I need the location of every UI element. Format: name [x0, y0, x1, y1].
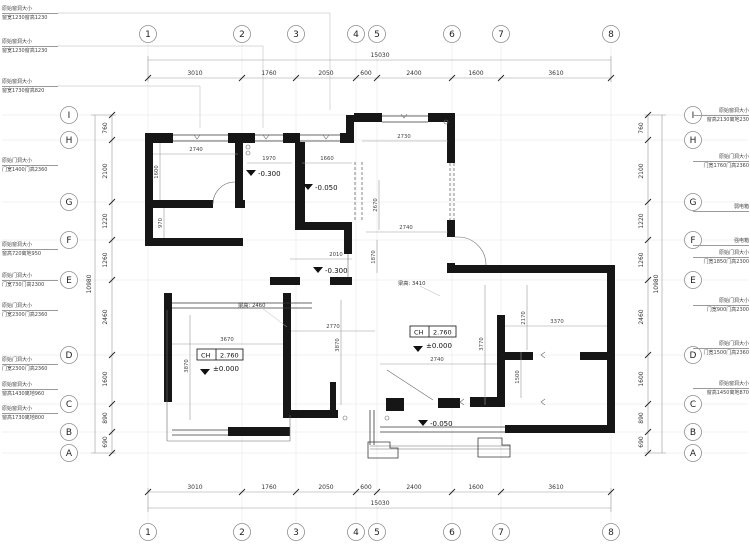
annotation-value: 窗宽1230窗高1230: [2, 14, 58, 21]
dim-text: 2740: [430, 357, 444, 363]
dim-text: 1260: [638, 252, 645, 267]
wall-layer: [145, 113, 615, 436]
svg-text:C: C: [66, 400, 72, 410]
dim-text: 2460: [638, 309, 645, 324]
dim-text: 3010: [187, 484, 202, 491]
svg-text:F: F: [66, 236, 71, 246]
grid-bubble: C: [61, 396, 78, 413]
grid-bubble: D: [61, 347, 78, 364]
dim-text: 2770: [326, 324, 340, 330]
annotation-door: 原始门洞大小门宽2300门高2360: [2, 303, 58, 318]
svg-text:G: G: [66, 198, 73, 208]
grid-bubble: 3: [288, 26, 305, 43]
annotation-value: 窗高2130离地230: [693, 116, 749, 123]
svg-text:B: B: [66, 428, 72, 438]
grid-bubble: 6: [444, 524, 461, 541]
annotation-door: 原始门洞大小门宽900门高2300: [693, 298, 749, 313]
grid-bubble: 6: [444, 26, 461, 43]
dim-text: 3610: [548, 484, 563, 491]
annotation-window: 原始窗洞大小窗高720离地950: [2, 242, 58, 257]
dim-text: 2170: [521, 311, 527, 325]
annotation-value: 窗宽1230窗高1230: [2, 47, 58, 54]
dim-text: 2100: [102, 163, 109, 178]
grid-bubble: 2: [234, 26, 251, 43]
dim-text: 2740: [399, 225, 413, 231]
svg-text:1: 1: [145, 30, 151, 40]
grid-bubble: A: [61, 445, 78, 462]
svg-text:8: 8: [608, 528, 614, 538]
grid-bubble: 8: [603, 524, 620, 541]
datum-text: ±0.000: [426, 342, 452, 350]
dim-text: 3870: [184, 359, 190, 373]
annotation-value: 窗高1430离地960: [2, 390, 58, 397]
ch-value: 2.760: [433, 329, 452, 337]
beam-label: 梁高: 3410: [398, 279, 426, 287]
annotation-title: 原始门洞大小: [2, 303, 58, 311]
annotation-title: 原始门洞大小: [2, 158, 58, 166]
dim-text: 760: [102, 122, 109, 134]
door-swings: [213, 182, 486, 400]
annotation-title: 原始门洞大小: [693, 298, 749, 306]
svg-text:3: 3: [293, 30, 299, 40]
dim-text: 3870: [335, 338, 341, 352]
annotation-window: 原始窗洞大小窗高1430离地960: [2, 382, 58, 397]
svg-text:1: 1: [145, 528, 151, 538]
dim-text: 2740: [189, 147, 203, 153]
grid-bubble: 5: [369, 26, 386, 43]
annotation-value: 门宽1500门高2360: [693, 349, 749, 356]
annotation-value: 门宽900门高2300: [693, 306, 749, 313]
grid-bubble: 3: [288, 524, 305, 541]
dim-text: 1220: [102, 213, 109, 228]
dim-text: 2730: [397, 134, 411, 140]
annotation-window: 原始窗洞大小窗高1450离地870: [693, 381, 749, 396]
dim-text: 1600: [638, 371, 645, 386]
spot-elevations: -0.300 -0.050 -0.300 -0.050: [246, 170, 453, 428]
annotation-value: 窗高720离地950: [2, 250, 58, 257]
annotation-title: 原始窗洞大小: [2, 406, 58, 414]
annotation-title: 原始门洞大小: [693, 341, 749, 349]
level-text: -0.300: [325, 267, 348, 275]
dim-text: 760: [638, 122, 645, 134]
dim-text: 1970: [262, 156, 276, 162]
grid-bubble: 5: [369, 524, 386, 541]
svg-text:7: 7: [498, 30, 504, 40]
grid-bubble: 1: [140, 26, 157, 43]
annotation-title: 原始窗洞大小: [2, 6, 58, 14]
annotation-title: 强电箱: [693, 238, 749, 246]
annotation-title: 原始窗洞大小: [2, 39, 58, 47]
annotation-title: 原始门洞大小: [2, 273, 58, 281]
grid-bubble: 8: [603, 26, 620, 43]
grid-bubbles-top: 1 2 3 4 5 6 7 8: [140, 26, 620, 43]
annotation-window: 原始窗洞大小窗高1730离地800: [2, 406, 58, 421]
dim-text: 3610: [548, 70, 563, 77]
bottom-dimensions: 15030 3010 1760 2050 600 2400 1600 3610: [187, 484, 563, 507]
dim-text: 1220: [638, 213, 645, 228]
ch-label: CH: [201, 352, 211, 360]
dim-text: 600: [360, 484, 372, 491]
svg-text:I: I: [68, 111, 71, 121]
svg-text:8: 8: [608, 30, 614, 40]
dim-text: 1600: [468, 70, 483, 77]
svg-text:H: H: [690, 136, 697, 146]
svg-text:E: E: [690, 276, 696, 286]
svg-text:5: 5: [374, 30, 380, 40]
dim-text: 3370: [550, 319, 564, 325]
datum-text: ±0.000: [213, 365, 239, 373]
svg-text:A: A: [66, 449, 73, 459]
floor-plan-canvas: 15030 3010 1760 2050 600 2400 1600 3610 …: [0, 0, 750, 556]
dim-text: 1600: [102, 371, 109, 386]
dim-text: 10980: [86, 274, 93, 293]
dim-text: 1260: [102, 252, 109, 267]
svg-text:E: E: [66, 276, 72, 286]
ch-box-dining: CH 2.760 ±0.000: [410, 326, 456, 352]
grid-bubble: 1: [140, 524, 157, 541]
grid-bubbles-left: I H G F E D C B A: [61, 107, 78, 462]
annotation-window: 原始窗洞大小窗宽1230窗高1230: [2, 6, 58, 21]
grid-bubble: B: [61, 424, 78, 441]
svg-text:H: H: [66, 136, 73, 146]
annotation-value: 窗宽1730窗高820: [2, 87, 58, 94]
level-text: -0.050: [430, 420, 453, 428]
right-dimensions: 10980 760 2100 1220 1260 2460 1600 890 6…: [638, 122, 660, 448]
dim-text: 10980: [653, 274, 660, 293]
dim-text: 15030: [370, 500, 389, 507]
annotation-value: 门宽1760门高2360: [693, 162, 749, 169]
svg-text:4: 4: [353, 30, 359, 40]
grid-bubble: 4: [348, 26, 365, 43]
dim-text: 2670: [373, 198, 379, 212]
annotation-title: 原始门洞大小: [2, 357, 58, 365]
dim-text: 1870: [371, 250, 377, 264]
svg-text:A: A: [690, 449, 697, 459]
svg-text:3: 3: [293, 528, 299, 538]
annotation-value: 门宽2300门高2360: [2, 311, 58, 318]
annotation-title: 原始门洞大小: [693, 154, 749, 162]
grid-bubble: C: [685, 396, 702, 413]
grid-bubbles-bottom: 1 2 3 4 5 6 7 8: [140, 524, 620, 541]
annotation-door: 原始门洞大小门宽1850门高2300: [693, 250, 749, 265]
dim-text: 2010: [329, 252, 343, 258]
svg-text:5: 5: [374, 528, 380, 538]
dim-text: 1660: [320, 156, 334, 162]
grid-bubble: E: [685, 272, 702, 289]
annotation-title: 原始窗洞大小: [693, 381, 749, 389]
annotation-door: 原始门洞大小门宽1400门高2360: [2, 158, 58, 173]
grid-bubble: G: [61, 194, 78, 211]
svg-text:2: 2: [239, 30, 245, 40]
annotation-weak-current-box: 弱电箱: [693, 204, 749, 212]
level-text: -0.050: [315, 184, 338, 192]
svg-text:C: C: [690, 400, 696, 410]
annotation-title: 原始窗洞大小: [2, 242, 58, 250]
annotation-title: 原始门洞大小: [693, 250, 749, 258]
annotation-value: 门宽730门高2300: [2, 281, 58, 288]
grid-bubble: H: [61, 132, 78, 149]
svg-text:6: 6: [449, 528, 455, 538]
svg-text:B: B: [690, 428, 696, 438]
annotation-window: 原始窗洞大小窗宽1230窗高1230: [2, 39, 58, 54]
dim-text: 2100: [638, 163, 645, 178]
dim-text: 890: [638, 412, 645, 424]
dim-text: 1760: [261, 484, 276, 491]
dim-text: 3670: [220, 337, 234, 343]
dim-text: 1760: [261, 70, 276, 77]
annotation-value: 窗高1730离地800: [2, 414, 58, 421]
floor-plan-svg: 15030 3010 1760 2050 600 2400 1600 3610 …: [0, 0, 750, 556]
svg-text:4: 4: [353, 528, 359, 538]
dim-text: 690: [102, 436, 109, 448]
dim-text: 2050: [318, 484, 333, 491]
svg-text:7: 7: [498, 528, 504, 538]
annotation-value: 窗高1450离地870: [693, 389, 749, 396]
annotation-value: 门宽2300门高2360: [2, 365, 58, 372]
grid-bubble: 7: [493, 524, 510, 541]
annotation-door: 原始门洞大小门宽730门高2300: [2, 273, 58, 288]
annotation-door: 原始门洞大小门宽1500门高2360: [693, 341, 749, 356]
dim-text: 600: [360, 70, 372, 77]
interior-dim-lines: [153, 141, 607, 420]
grid-bubble: 4: [348, 524, 365, 541]
ch-label: CH: [414, 329, 424, 337]
annotation-value: 门宽1850门高2300: [693, 258, 749, 265]
dim-text: 970: [158, 217, 164, 228]
grid-bubble: H: [685, 132, 702, 149]
annotation-title: 原始窗洞大小: [2, 79, 58, 87]
dim-text: 2050: [318, 70, 333, 77]
dimension-lines: [91, 56, 666, 512]
annotation-title: 原始窗洞大小: [693, 108, 749, 116]
annotation-title: 原始窗洞大小: [2, 382, 58, 390]
dim-text: 15030: [370, 52, 389, 59]
annotation-title: 弱电箱: [693, 204, 749, 212]
grid-bubble: I: [61, 107, 78, 124]
grid-bubble: F: [61, 232, 78, 249]
ch-box-living: CH 2.760 ±0.000: [197, 349, 243, 375]
dim-text: 1500: [515, 370, 521, 384]
grid-bubble: 7: [493, 26, 510, 43]
grid-bubble: 2: [234, 524, 251, 541]
grid-bubble: A: [685, 445, 702, 462]
level-text: -0.300: [258, 170, 281, 178]
annotation-value: 门宽1400门高2360: [2, 166, 58, 173]
dim-text: 1600: [468, 484, 483, 491]
svg-text:D: D: [66, 351, 73, 361]
ch-value: 2.760: [220, 352, 239, 360]
svg-text:6: 6: [449, 30, 455, 40]
annotation-door: 原始门洞大小门宽1760门高2360: [693, 154, 749, 169]
svg-text:2: 2: [239, 528, 245, 538]
top-dimensions: 15030 3010 1760 2050 600 2400 1600 3610: [187, 52, 563, 77]
dim-text: 1600: [154, 165, 160, 179]
grid-bubble: E: [61, 272, 78, 289]
grid-bubble: B: [685, 424, 702, 441]
dim-text: 3010: [187, 70, 202, 77]
dim-text: 690: [638, 436, 645, 448]
annotation-window: 原始窗洞大小窗高2130离地230: [693, 108, 749, 123]
annotation-strong-current-box: 强电箱: [693, 238, 749, 246]
annotation-door: 原始门洞大小门宽2300门高2360: [2, 357, 58, 372]
dim-text: 890: [102, 412, 109, 424]
beam-label: 梁高: 2460: [238, 301, 266, 309]
left-dimensions: 10980 760 2100 1220 1260 2460 1600 890 6…: [86, 122, 109, 448]
dim-text: 2400: [406, 70, 421, 77]
dim-text: 3770: [479, 337, 485, 351]
dim-text: 2460: [102, 309, 109, 324]
annotation-window: 原始窗洞大小窗宽1730窗高820: [2, 79, 58, 94]
dim-text: 2400: [406, 484, 421, 491]
